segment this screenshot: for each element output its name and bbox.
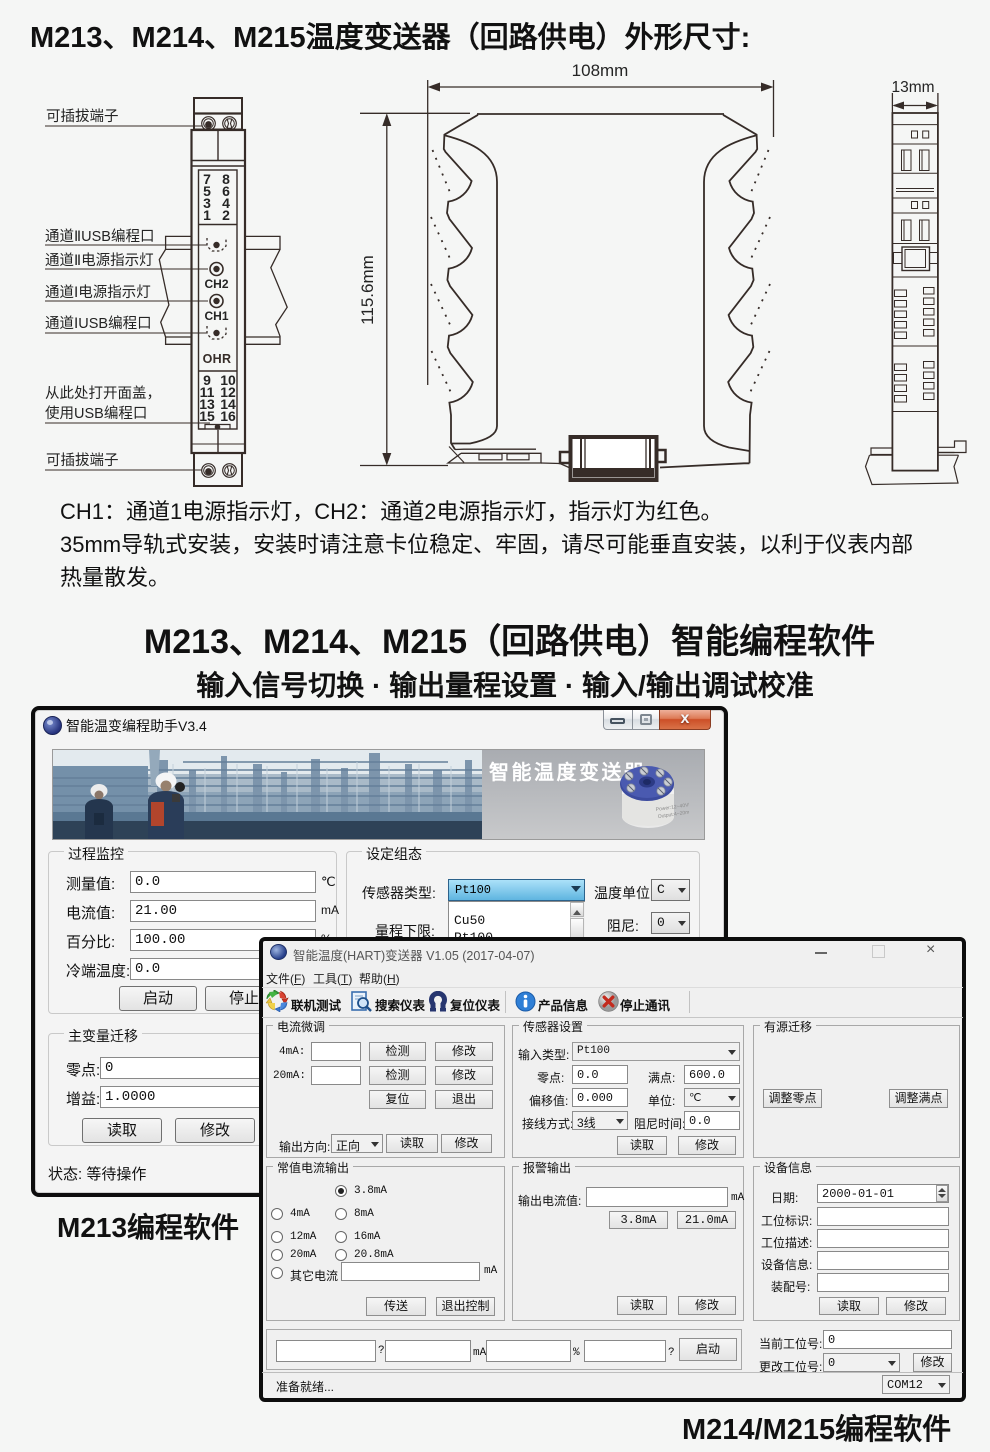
svg-text:CH2: CH2 bbox=[204, 277, 228, 291]
svg-text:通道Ⅱ电源指示灯: 通道Ⅱ电源指示灯 bbox=[45, 252, 154, 269]
svg-text:2: 2 bbox=[222, 207, 230, 223]
svg-text:1: 1 bbox=[203, 207, 211, 223]
svg-text:通道Ⅰ电源指示灯: 通道Ⅰ电源指示灯 bbox=[45, 284, 151, 301]
svg-text:CH1: CH1 bbox=[204, 309, 228, 323]
svg-text:16: 16 bbox=[220, 408, 236, 424]
svg-text:13mm: 13mm bbox=[891, 79, 934, 96]
svg-text:可插拔端子: 可插拔端子 bbox=[46, 108, 119, 125]
svg-text:使用USB编程口: 使用USB编程口 bbox=[45, 405, 147, 422]
svg-text:从此处打开面盖，: 从此处打开面盖， bbox=[45, 385, 161, 402]
svg-text:108mm: 108mm bbox=[572, 61, 629, 80]
svg-text:通道ⅡUSB编程口: 通道ⅡUSB编程口 bbox=[45, 228, 154, 245]
svg-text:OHR: OHR bbox=[203, 352, 232, 366]
svg-text:115.6mm: 115.6mm bbox=[358, 255, 377, 325]
svg-text:可插拔端子: 可插拔端子 bbox=[46, 452, 119, 469]
svg-text:通道ⅠUSB编程口: 通道ⅠUSB编程口 bbox=[45, 315, 152, 332]
svg-text:15: 15 bbox=[199, 408, 215, 424]
